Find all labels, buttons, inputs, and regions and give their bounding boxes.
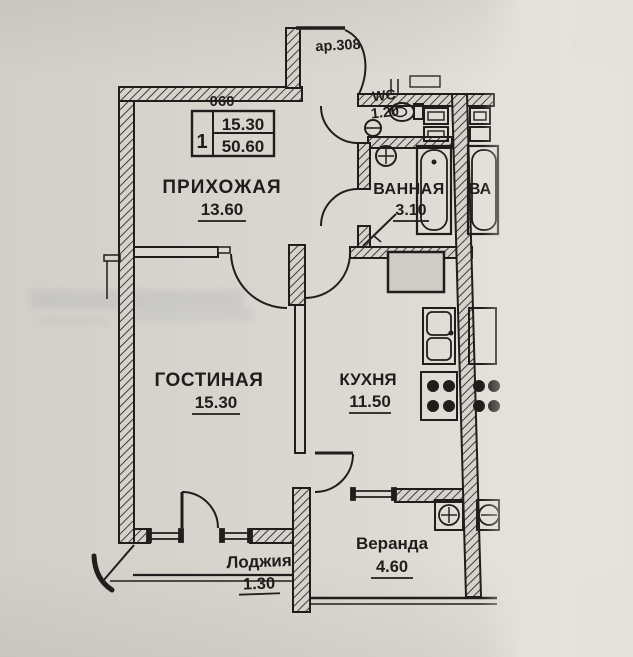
hallway-area: 13.60 bbox=[201, 200, 244, 219]
bathroom-area: 3.10 bbox=[395, 202, 426, 219]
total-area-value: 50.60 bbox=[222, 137, 265, 156]
bathroom-label: ВАННАЯ bbox=[373, 181, 444, 198]
hallway-label: ПРИХОЖАЯ bbox=[162, 177, 281, 198]
wc-label: WC bbox=[371, 86, 396, 104]
bath-sink-icon bbox=[376, 146, 396, 166]
kitchen-area: 11.50 bbox=[349, 392, 391, 411]
kitchen-label: КУХНЯ bbox=[339, 370, 396, 389]
wall-entry-stub bbox=[286, 28, 300, 88]
veranda-label: Веранда bbox=[356, 534, 429, 553]
floorplan-photo: 060 1 15.30 50.60 ар.308 ПРИХОЖАЯ 13.60 … bbox=[0, 0, 633, 657]
living-label: ГОСТИНАЯ bbox=[155, 370, 264, 391]
loggia-area: 1.30 bbox=[243, 574, 276, 593]
photo-washout-solid bbox=[560, 0, 633, 657]
wall-hall-living bbox=[134, 247, 218, 257]
wall-living-kitchen-pillar-top bbox=[289, 245, 305, 305]
loggia-label: Лоджия bbox=[226, 551, 292, 572]
entry-label: ар.308 bbox=[315, 37, 361, 55]
wc-area: 1.20 bbox=[370, 104, 400, 123]
wall-kitchen-west bbox=[295, 305, 305, 453]
wall-left-outer bbox=[119, 87, 134, 543]
rooms-count: 1 bbox=[196, 131, 207, 153]
floorplan-drawing: 060 1 15.30 50.60 ар.308 ПРИХОЖАЯ 13.60 … bbox=[0, 0, 633, 657]
photo-washout bbox=[482, 0, 572, 657]
plan-number: 060 bbox=[209, 93, 234, 110]
living-area: 15.30 bbox=[195, 393, 238, 412]
wall-kitchen-veranda-pillar bbox=[293, 488, 310, 612]
wall-living-south-right bbox=[250, 529, 293, 543]
living-area-value: 15.30 bbox=[222, 115, 265, 134]
veranda-area: 4.60 bbox=[376, 558, 408, 576]
shaft-box bbox=[388, 252, 444, 292]
wall-bath-west-mid bbox=[358, 143, 370, 189]
watermark-smudge bbox=[30, 290, 254, 326]
wall-jog bbox=[218, 247, 230, 253]
